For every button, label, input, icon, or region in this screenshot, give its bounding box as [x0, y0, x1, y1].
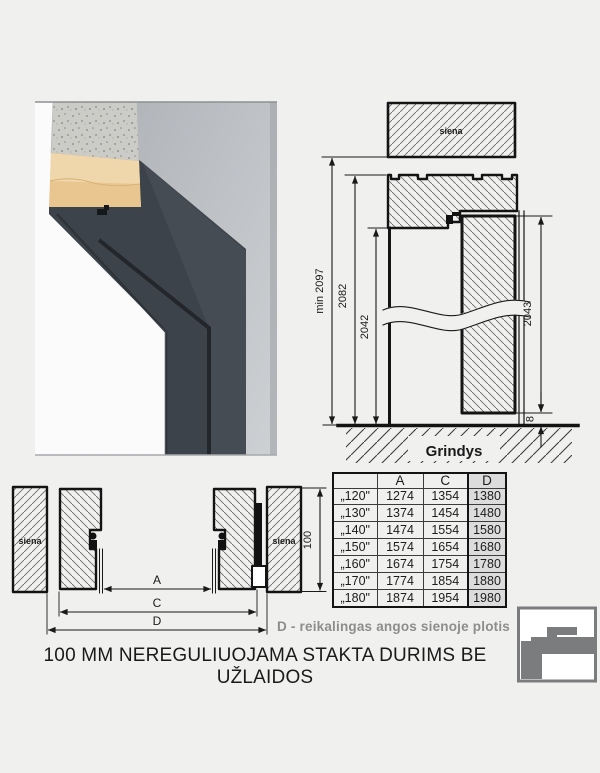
- svg-text:A: A: [153, 573, 161, 587]
- dimension-opening-height: 2042: [359, 228, 387, 424]
- dim-cell-a: 1374: [377, 505, 423, 522]
- size-cell: „150": [333, 539, 377, 556]
- table-row: „150"157416541680: [333, 539, 506, 556]
- dimension-wall-thickness: 100: [302, 488, 326, 592]
- gasket-bar: [256, 503, 262, 567]
- dim-cell-d: 1480: [468, 505, 506, 522]
- frame-corner-photo: [35, 102, 277, 455]
- right-seal-detail: [218, 540, 226, 548]
- horizontal-section-drawing: siena siena 100 A: [13, 487, 326, 634]
- photo-concrete-layer: [51, 102, 139, 161]
- wall-label: siena: [439, 126, 463, 136]
- dim-cell-c: 1554: [423, 522, 468, 539]
- dim-cell-d: 1880: [468, 573, 506, 590]
- dim-cell-c: 1354: [423, 488, 468, 505]
- dim-cell-c: 1454: [423, 505, 468, 522]
- size-cell: „130": [333, 505, 377, 522]
- table-row: „160"167417541780: [333, 556, 506, 573]
- dim-cell-c: 1954: [423, 589, 468, 607]
- head-seal-detail: [452, 212, 460, 216]
- size-cell: „120": [333, 488, 377, 505]
- dim-cell-d: 1680: [468, 539, 506, 556]
- dimension-frame-height: 2082: [337, 175, 386, 424]
- svg-text:100: 100: [302, 531, 314, 549]
- left-seal-detail: [90, 533, 97, 540]
- header-c: C: [423, 473, 468, 488]
- dim-cell-a: 1474: [377, 522, 423, 539]
- dim-cell-d: 1780: [468, 556, 506, 573]
- svg-text:min 2097: min 2097: [314, 268, 326, 313]
- dimension-min-height: min 2097: [314, 157, 388, 424]
- size-table: A C D „120"127413541380„130"137414541480…: [332, 472, 507, 608]
- dim-cell-d: 1580: [468, 522, 506, 539]
- header-d: D: [468, 473, 506, 488]
- dim-cell-d: 1980: [468, 589, 506, 607]
- d-note: D - reikalingas angos sienoje plotis: [270, 619, 510, 634]
- table-header-row: A C D: [333, 473, 506, 488]
- svg-text:C: C: [153, 596, 162, 610]
- table-row: „180"187419541980: [333, 589, 506, 607]
- size-cell: „180": [333, 589, 377, 607]
- dim-cell-c: 1754: [423, 556, 468, 573]
- left-seal-detail: [89, 540, 97, 548]
- svg-text:2042: 2042: [359, 315, 371, 339]
- size-table-body: „120"127413541380„130"137414541480„140"1…: [333, 488, 506, 607]
- dim-cell-a: 1774: [377, 573, 423, 590]
- size-cell: „140": [333, 522, 377, 539]
- table-row: „170"177418541880: [333, 573, 506, 590]
- dim-cell-a: 1874: [377, 589, 423, 607]
- right-frame-profile: [214, 489, 255, 589]
- right-seal-detail: [219, 533, 226, 540]
- svg-text:D: D: [153, 614, 162, 628]
- table-row: „120"127413541380: [333, 488, 506, 505]
- dim-cell-c: 1854: [423, 573, 468, 590]
- page: { "colors": { "background": "#f0f0ee", "…: [0, 0, 600, 773]
- dim-cell-c: 1654: [423, 539, 468, 556]
- hinge-plate: [252, 566, 266, 587]
- dim-cell-a: 1674: [377, 556, 423, 573]
- left-frame-profile: [60, 489, 101, 589]
- left-wall-label: siena: [18, 536, 42, 546]
- svg-text:2043: 2043: [522, 302, 534, 326]
- vertical-section-drawing: siena Grindys min 2097 2082: [314, 103, 578, 463]
- photo-seal-detail: [104, 205, 109, 210]
- head-seal-detail: [446, 215, 453, 224]
- page-caption: 100 MM NEREGULIUOJAMA STAKTA DURIMS BE U…: [0, 645, 530, 689]
- size-cell: „170": [333, 573, 377, 590]
- table-row: „140"147415541580: [333, 522, 506, 539]
- table-row: „130"137414541480: [333, 505, 506, 522]
- svg-text:8: 8: [525, 416, 537, 422]
- dim-cell-a: 1274: [377, 488, 423, 505]
- photo-wall-edge: [270, 102, 277, 455]
- dimension-c: C: [59, 590, 257, 616]
- svg-text:2082: 2082: [337, 284, 349, 308]
- dim-cell-a: 1574: [377, 539, 423, 556]
- brand-logo-icon: [519, 608, 596, 681]
- header-a: A: [377, 473, 423, 488]
- header-size: [333, 473, 377, 488]
- size-cell: „160": [333, 556, 377, 573]
- dim-cell-d: 1380: [468, 488, 506, 505]
- floor-label: Grindys: [426, 443, 483, 460]
- dimension-a: A: [105, 573, 211, 589]
- right-wall-label: siena: [272, 536, 296, 546]
